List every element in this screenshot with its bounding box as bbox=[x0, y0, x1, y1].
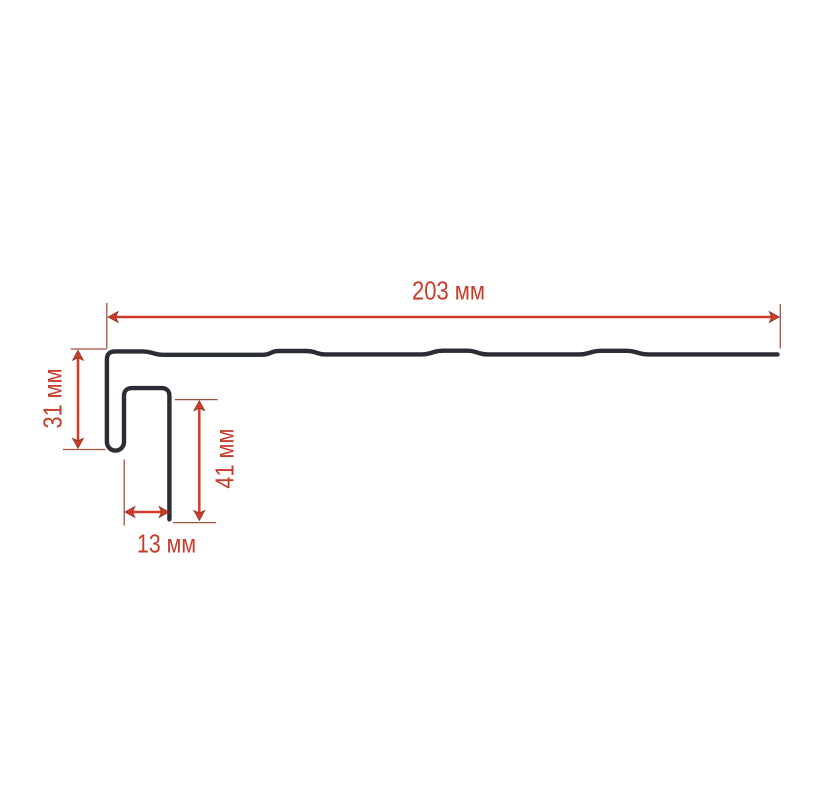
svg-text:203 мм: 203 мм bbox=[412, 276, 485, 306]
svg-text:41 мм: 41 мм bbox=[210, 429, 240, 489]
svg-text:31 мм: 31 мм bbox=[38, 369, 68, 429]
svg-text:13 мм: 13 мм bbox=[137, 529, 196, 559]
